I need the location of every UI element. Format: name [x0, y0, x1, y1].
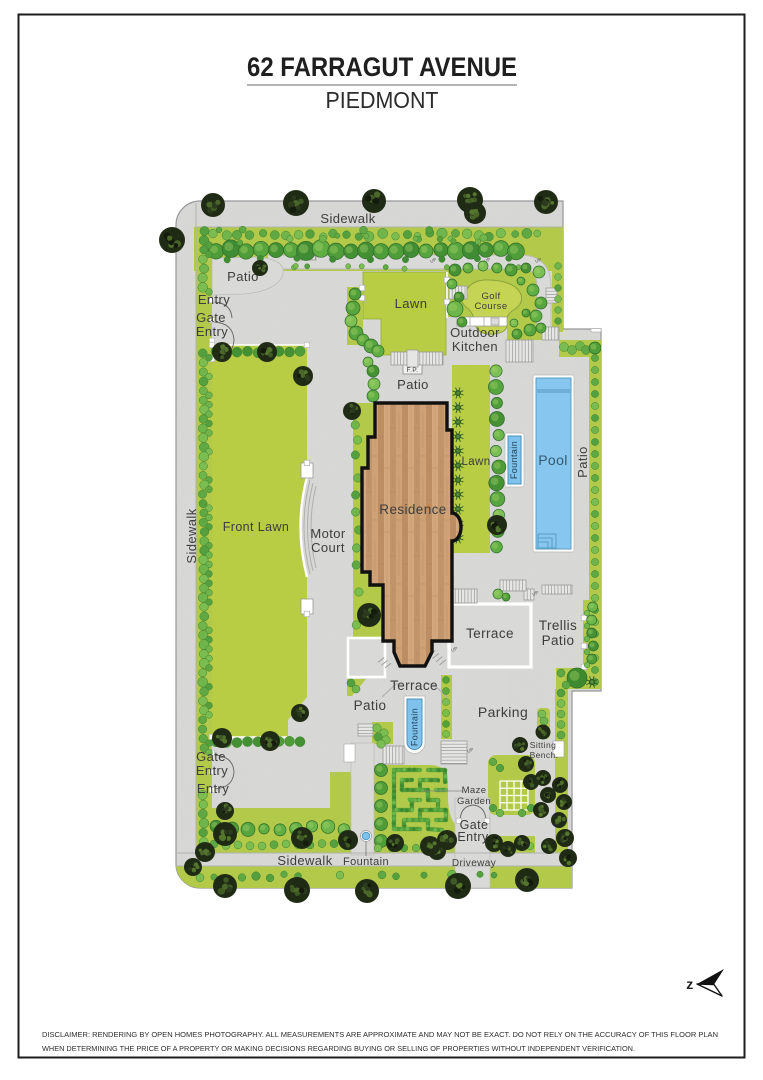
svg-text:Entry: Entry: [198, 292, 230, 307]
svg-text:Driveway: Driveway: [452, 858, 496, 869]
svg-text:Bench.: Bench.: [530, 750, 559, 760]
svg-text:Residence: Residence: [379, 502, 446, 517]
svg-text:Patio: Patio: [575, 446, 590, 478]
svg-text:Gate: Gate: [196, 310, 226, 325]
svg-text:Terrace: Terrace: [466, 626, 514, 641]
svg-text:Lawn: Lawn: [395, 296, 428, 311]
svg-text:Fountain: Fountain: [410, 708, 420, 746]
svg-text:F.P.: F.P.: [407, 367, 419, 374]
svg-text:Fountain: Fountain: [343, 856, 389, 868]
svg-text:Pool: Pool: [538, 452, 568, 468]
svg-text:Gate: Gate: [196, 749, 226, 764]
svg-text:Patio: Patio: [542, 633, 575, 648]
svg-text:Motor: Motor: [310, 526, 346, 541]
svg-text:Course: Course: [474, 301, 507, 312]
svg-text:Garden: Garden: [457, 796, 491, 807]
svg-text:Lawn: Lawn: [461, 456, 490, 468]
svg-text:Patio: Patio: [397, 377, 429, 392]
svg-text:Sidewalk: Sidewalk: [184, 508, 199, 563]
svg-text:WHEN DETERMINING THE PRICE OF: WHEN DETERMINING THE PRICE OF A PROPERTY…: [42, 1044, 635, 1053]
svg-text:z: z: [686, 976, 693, 992]
svg-text:Sitting: Sitting: [530, 740, 556, 750]
svg-text:PIEDMONT: PIEDMONT: [326, 87, 439, 113]
svg-text:Front Lawn: Front Lawn: [223, 520, 290, 534]
svg-text:Entry: Entry: [197, 781, 229, 796]
svg-text:Trellis: Trellis: [539, 618, 577, 633]
svg-text:Entry: Entry: [457, 830, 489, 844]
svg-text:Sidewalk: Sidewalk: [277, 853, 332, 868]
svg-text:Kitchen: Kitchen: [452, 339, 498, 354]
svg-text:Patio: Patio: [354, 698, 387, 713]
svg-text:Court: Court: [311, 540, 345, 555]
svg-text:Parking: Parking: [478, 704, 528, 720]
svg-text:Terrace: Terrace: [390, 678, 438, 693]
svg-text:Sidewalk: Sidewalk: [320, 211, 375, 226]
svg-text:Fountain: Fountain: [509, 441, 519, 479]
svg-text:Outdoor: Outdoor: [450, 325, 500, 340]
svg-text:Maze: Maze: [462, 785, 487, 796]
svg-text:62 FARRAGUT AVENUE: 62 FARRAGUT AVENUE: [247, 52, 517, 82]
svg-text:Entry: Entry: [196, 324, 228, 339]
svg-text:Entry: Entry: [196, 763, 228, 778]
svg-text:DISCLAIMER: RENDERING BY OPEN: DISCLAIMER: RENDERING BY OPEN HOMES PHOT…: [42, 1030, 718, 1039]
